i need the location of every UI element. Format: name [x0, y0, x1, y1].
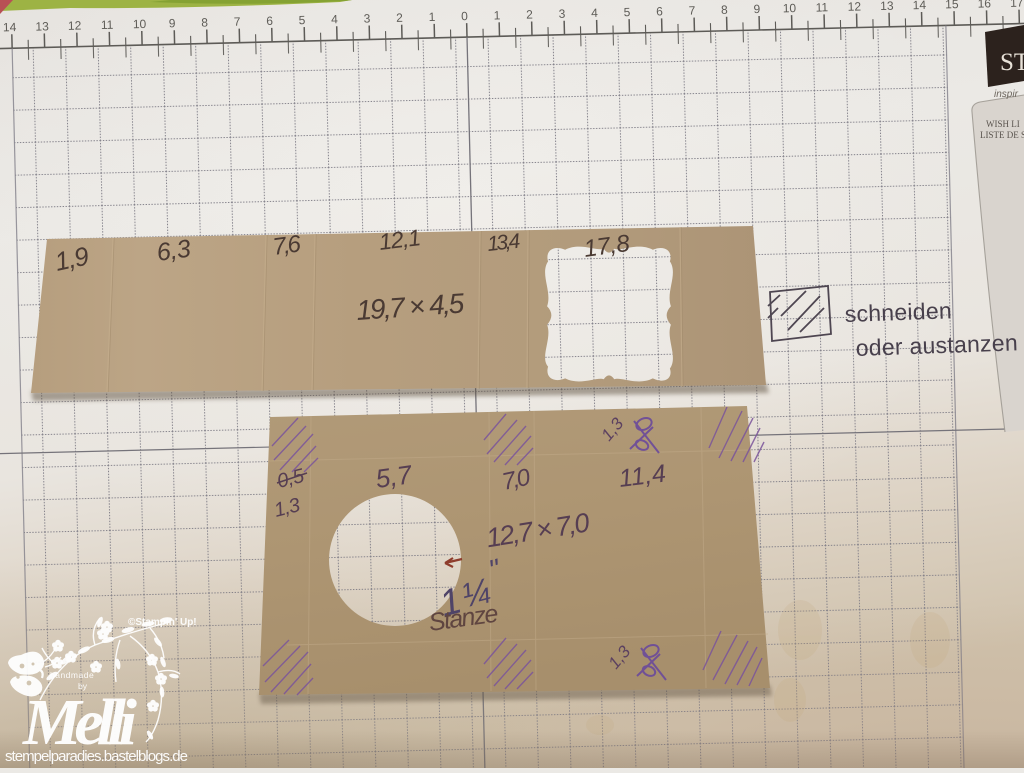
svg-text:WISH LI: WISH LI: [986, 119, 1020, 129]
svg-text:7: 7: [234, 15, 241, 29]
svg-text:1: 1: [493, 8, 500, 22]
svg-text:5: 5: [623, 5, 630, 19]
svg-text:13: 13: [880, 0, 894, 13]
svg-text:handmade: handmade: [50, 670, 94, 680]
svg-text:10: 10: [783, 1, 797, 15]
svg-text:8: 8: [201, 15, 208, 29]
svg-text:11: 11: [101, 18, 114, 32]
svg-text:9: 9: [169, 16, 176, 30]
svg-text:6: 6: [656, 4, 663, 18]
svg-text:0: 0: [461, 9, 468, 23]
svg-text:11: 11: [815, 0, 828, 14]
svg-text:ST: ST: [1000, 49, 1024, 76]
svg-text:stempelparadies.bastelblogs.de: stempelparadies.bastelblogs.de: [5, 748, 188, 765]
svg-text:4: 4: [331, 12, 338, 26]
svg-text:14: 14: [3, 20, 17, 34]
svg-text:11,4: 11,4: [617, 459, 667, 493]
svg-text:1: 1: [428, 10, 435, 24]
svg-text:8: 8: [721, 3, 728, 17]
svg-text:15: 15: [945, 0, 959, 11]
svg-text:16: 16: [977, 0, 991, 11]
svg-text:4: 4: [591, 6, 598, 20]
svg-text:2: 2: [396, 11, 403, 25]
svg-text:schneiden: schneiden: [844, 297, 952, 327]
svg-text:12: 12: [848, 0, 862, 14]
svg-text:17: 17: [1010, 0, 1024, 10]
svg-text:13,4: 13,4: [486, 230, 521, 256]
svg-text:3: 3: [558, 7, 565, 21]
svg-text:inspir: inspir: [994, 89, 1019, 100]
svg-text:9: 9: [753, 2, 760, 16]
svg-text:7,6: 7,6: [271, 230, 303, 261]
svg-text:2: 2: [526, 7, 533, 21]
svg-text:6: 6: [266, 14, 273, 28]
svg-text:5,7: 5,7: [374, 459, 415, 494]
svg-text:LISTE DE S: LISTE DE S: [980, 130, 1024, 140]
svg-text:13: 13: [35, 19, 49, 33]
svg-text:6,3: 6,3: [155, 234, 193, 266]
svg-text:7: 7: [688, 4, 695, 18]
svg-text:3: 3: [364, 11, 371, 25]
svg-text:10: 10: [133, 17, 147, 31]
svg-text:12: 12: [68, 19, 82, 33]
svg-text:12,1: 12,1: [377, 224, 422, 255]
svg-text:5: 5: [299, 13, 306, 27]
svg-text:14: 14: [913, 0, 927, 12]
